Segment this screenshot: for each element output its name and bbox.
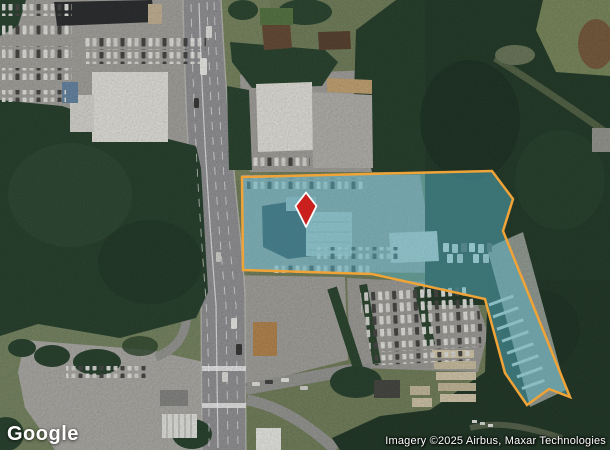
satellite-imagery bbox=[0, 0, 610, 450]
map-canvas[interactable]: Google Imagery ©2025 Airbus, Maxar Techn… bbox=[0, 0, 610, 450]
imagery-attribution: Imagery ©2025 Airbus, Maxar Technologies bbox=[385, 435, 606, 447]
google-logo[interactable]: Google bbox=[7, 423, 79, 446]
